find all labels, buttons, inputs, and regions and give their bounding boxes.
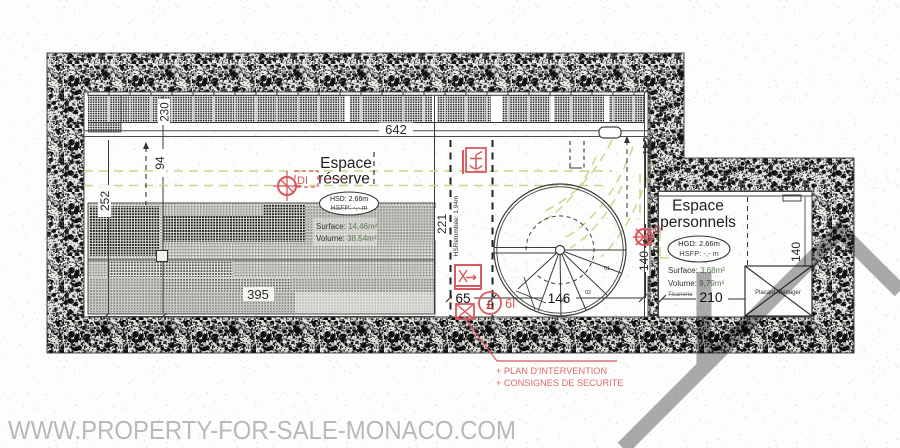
svg-text:Espace: Espace — [672, 198, 724, 215]
svg-text:Volume: 38,54m³: Volume: 38,54m³ — [316, 234, 377, 243]
svg-text:HSFP: -,- m: HSFP: -,- m — [679, 249, 719, 258]
svg-text:6l: 6l — [505, 296, 515, 311]
svg-text:WWW.PROPERTY-FOR-SALE-MONACO.C: WWW.PROPERTY-FOR-SALE-MONACO.COM — [8, 415, 516, 445]
svg-text:642: 642 — [385, 122, 407, 137]
svg-text:HGD: 2.66m: HGD: 2.66m — [678, 239, 720, 248]
svg-text:230: 230 — [160, 102, 172, 121]
svg-text:146: 146 — [548, 291, 571, 306]
svg-text:395: 395 — [247, 287, 269, 302]
svg-text:£: £ — [486, 297, 494, 312]
svg-text:01: 01 — [604, 266, 610, 272]
svg-text:Espace: Espace — [320, 155, 372, 172]
svg-text:HSFP: -,- m: HSFP: -,- m — [331, 205, 368, 212]
svg-text:Volume: 9,79m³: Volume: 9,79m³ — [668, 279, 724, 288]
svg-text:140: 140 — [789, 242, 803, 262]
svg-text:Tisanerie: Tisanerie — [668, 292, 693, 298]
svg-text:+ PLAN D'INTERVENTION: + PLAN D'INTERVENTION — [496, 366, 607, 376]
svg-text:D: D — [654, 225, 661, 236]
svg-text:03: 03 — [560, 298, 566, 304]
svg-text:02: 02 — [585, 290, 591, 296]
svg-text:+ CONSIGNES DE SECURITE: + CONSIGNES DE SECURITE — [496, 378, 623, 388]
svg-text:221: 221 — [435, 214, 449, 234]
svg-text:252: 252 — [98, 191, 112, 211]
svg-text:personnels: personnels — [660, 214, 736, 231]
svg-text:HSRetombée: 1,94m: HSRetombée: 1,94m — [453, 196, 460, 257]
svg-text:Surface: 14,46m²: Surface: 14,46m² — [316, 222, 378, 231]
svg-text:DI: DI — [297, 175, 308, 187]
svg-text:HSD: 2.66m: HSD: 2.66m — [330, 196, 368, 203]
svg-text:94: 94 — [153, 156, 167, 170]
